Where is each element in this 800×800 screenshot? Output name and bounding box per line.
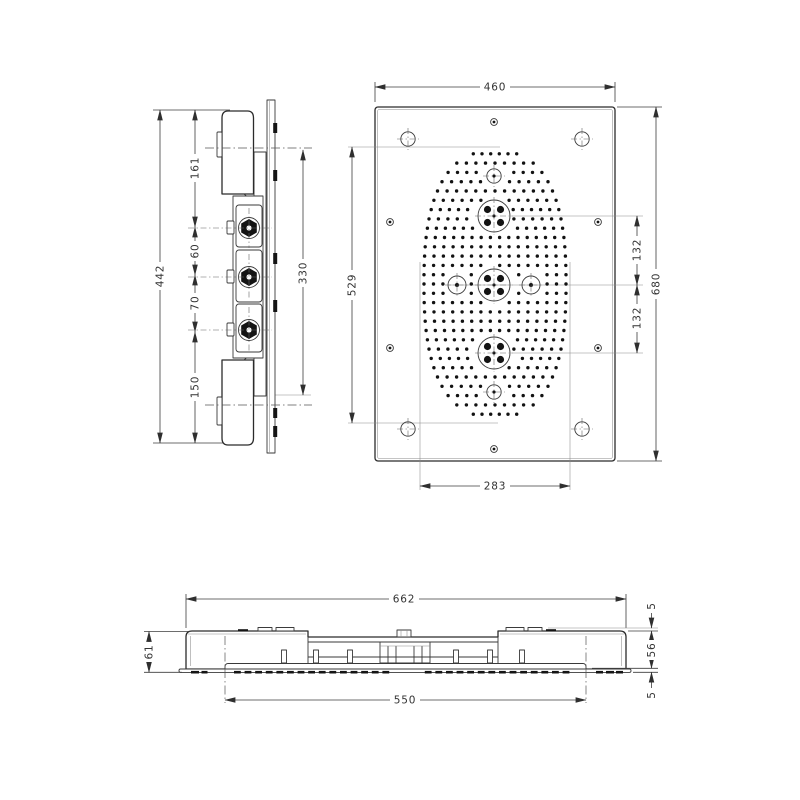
dim-label-housing-width: 662 [389, 593, 419, 606]
dim-label-spray-width: 283 [480, 480, 510, 493]
dim-label-clearance-top: 5 [646, 599, 659, 613]
dim-label-segment-upper: 60 [189, 241, 202, 261]
bottom-view: 662 550 61 5 56 5 [143, 593, 658, 707]
fixing-tab-bottom [217, 397, 222, 425]
dim-label-segment-bottom: 150 [189, 373, 202, 401]
dim-label-panel-height: 680 [650, 269, 663, 299]
valve-stub-1 [227, 221, 234, 234]
dim-label-overall-height: 442 [154, 262, 167, 290]
valve-stub-2 [227, 270, 234, 283]
shower-technical-drawing: 442 161 60 70 150 330 [0, 0, 800, 800]
dim-label-plate-width: 550 [390, 694, 420, 707]
dim-label-jet-spacing-lower: 132 [631, 304, 644, 332]
svg-text:283: 283 [484, 481, 506, 493]
dim-label-segment-lower: 70 [189, 293, 202, 313]
dim-label-jet-spacing-upper: 132 [631, 236, 644, 264]
dim-label-segment-top: 161 [189, 154, 202, 182]
dim-label-plate-height: 330 [297, 259, 310, 287]
dim-label-housing-depth: 56 [646, 640, 659, 660]
wall-plate-edge [267, 100, 275, 453]
connector-tab [397, 630, 411, 637]
dim-label-spray-height: 529 [346, 270, 359, 300]
housing-lower-box [222, 360, 254, 445]
front-view: 460 529 680 132 132 283 [346, 81, 663, 493]
svg-text:70: 70 [190, 296, 202, 311]
dim-label-panel-projection: 5 [646, 688, 659, 702]
fixing-tab-top [217, 132, 222, 157]
svg-text:550: 550 [394, 695, 416, 707]
svg-text:662: 662 [393, 594, 415, 606]
svg-text:132: 132 [632, 307, 644, 329]
dim-label-panel-width: 460 [480, 81, 510, 94]
connector-body [380, 642, 430, 663]
svg-text:150: 150 [190, 376, 202, 398]
housing-upper-box [222, 111, 254, 194]
svg-text:680: 680 [651, 273, 663, 295]
svg-text:56: 56 [646, 643, 658, 658]
svg-text:61: 61 [144, 645, 156, 660]
svg-text:5: 5 [646, 691, 658, 698]
svg-text:132: 132 [632, 239, 644, 261]
technical-drawing-page: 442 161 60 70 150 330 [0, 0, 800, 800]
svg-text:60: 60 [190, 244, 202, 259]
center-connector [380, 630, 430, 663]
svg-text:330: 330 [298, 262, 310, 284]
svg-text:442: 442 [155, 265, 167, 287]
side-view: 442 161 60 70 150 330 [153, 100, 312, 453]
svg-text:529: 529 [347, 274, 359, 296]
svg-text:460: 460 [484, 82, 506, 94]
dim-label-recess-depth: 61 [143, 642, 156, 662]
svg-text:5: 5 [646, 602, 658, 609]
svg-text:161: 161 [190, 157, 202, 179]
valve-stub-3 [227, 323, 234, 336]
